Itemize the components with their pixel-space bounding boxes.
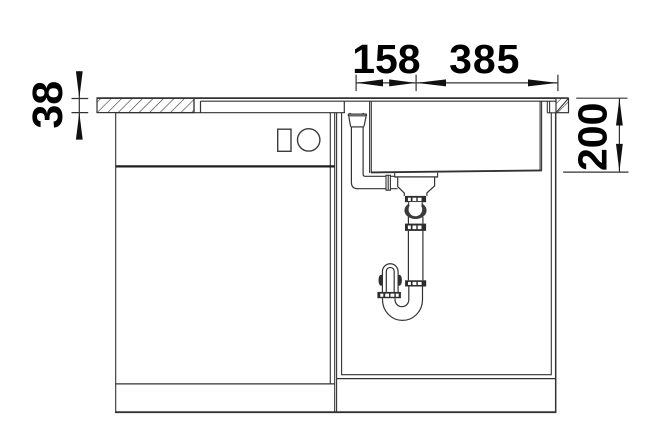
svg-text:200: 200 [569, 103, 615, 171]
svg-text:158: 158 [352, 36, 420, 82]
svg-text:385: 385 [449, 36, 520, 82]
svg-text:38: 38 [24, 81, 72, 129]
